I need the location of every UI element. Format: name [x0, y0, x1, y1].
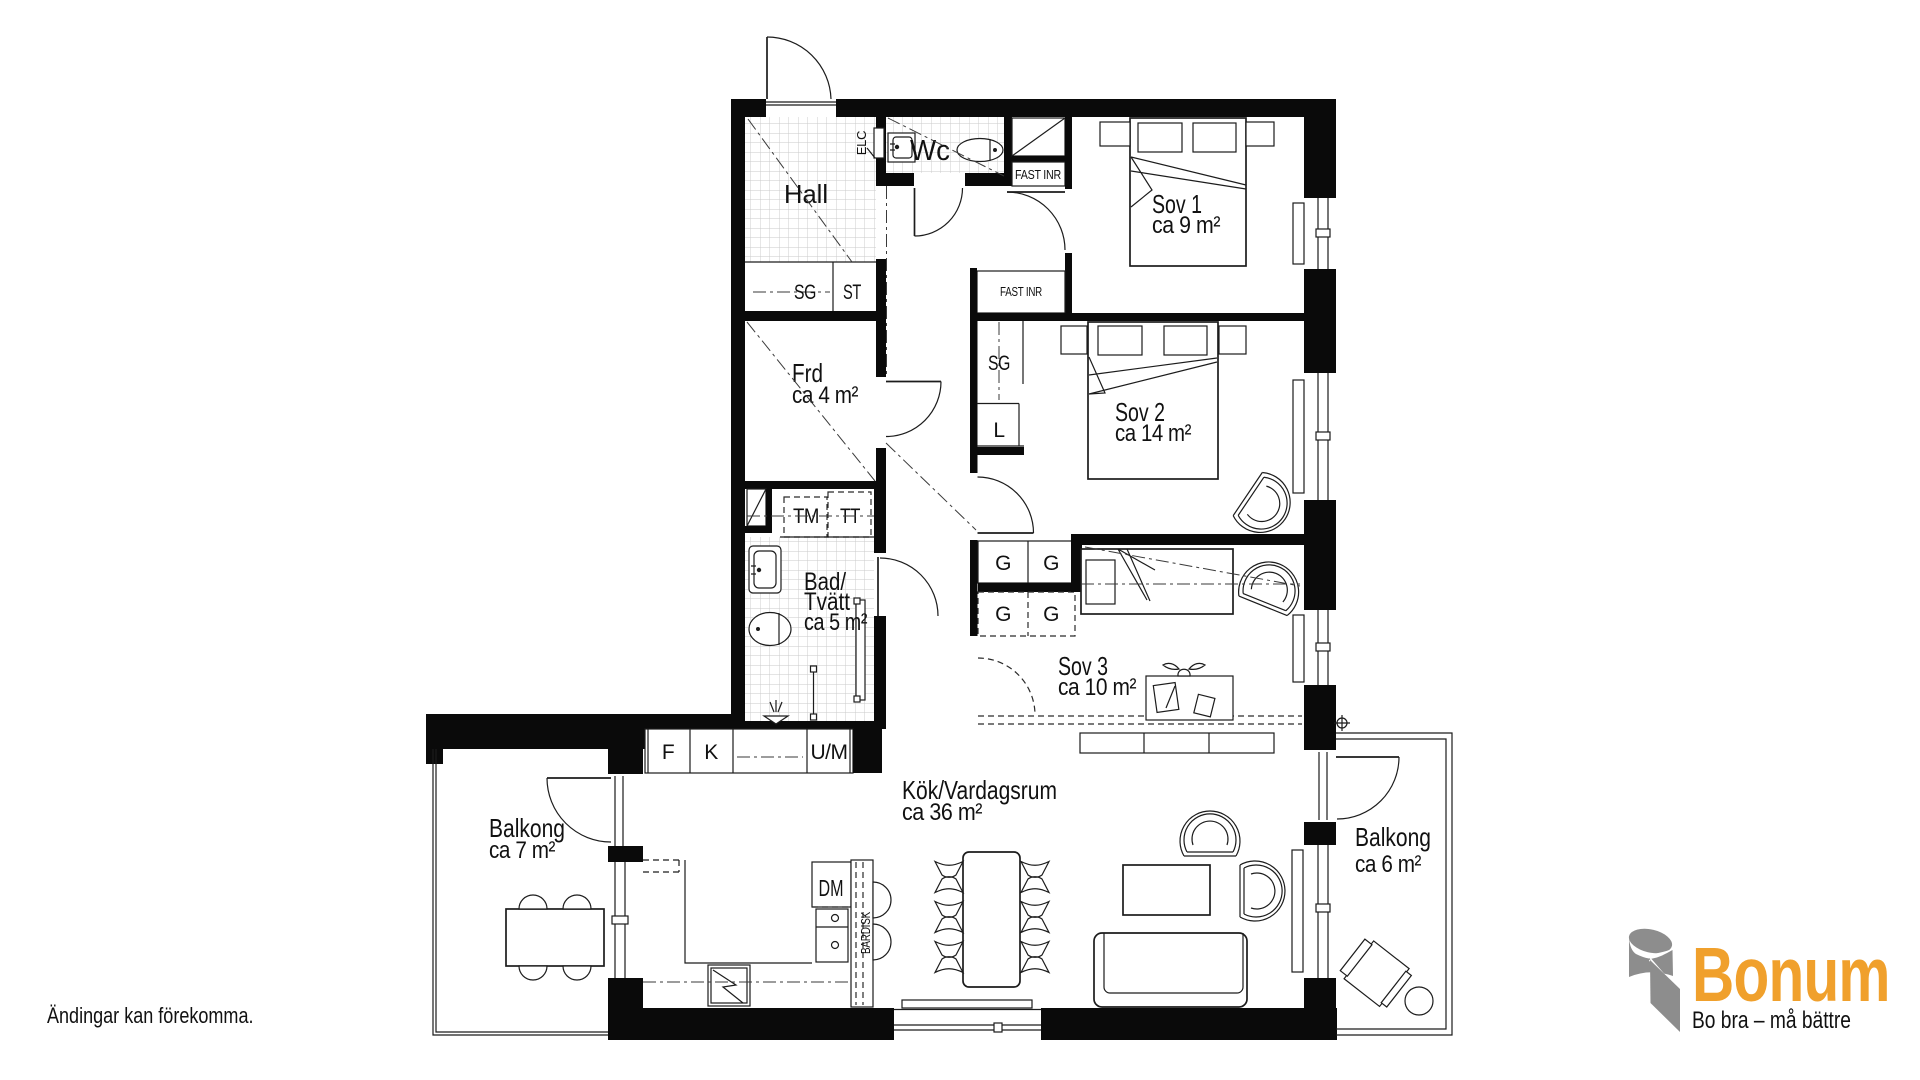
- svg-text:ST: ST: [843, 281, 861, 304]
- svg-text:ca 10 m²: ca 10 m²: [1058, 674, 1136, 701]
- svg-text:SG: SG: [794, 281, 816, 304]
- svg-text:ca 6 m²: ca 6 m²: [1355, 851, 1421, 878]
- svg-text:Bo bra – må bättre: Bo bra – må bättre: [1692, 1006, 1851, 1034]
- svg-text:F: F: [662, 741, 674, 764]
- svg-text:G: G: [1043, 603, 1059, 626]
- svg-text:Wc: Wc: [910, 135, 950, 167]
- svg-text:L: L: [993, 419, 1004, 442]
- svg-text:DM: DM: [819, 875, 844, 901]
- svg-text:FAST INR: FAST INR: [1000, 284, 1042, 299]
- svg-text:SG: SG: [988, 352, 1010, 375]
- svg-text:G: G: [995, 552, 1011, 575]
- svg-text:U/M: U/M: [811, 741, 848, 764]
- svg-text:ca 9 m²: ca 9 m²: [1152, 212, 1220, 239]
- svg-text:Ändingar kan förekomma.: Ändingar kan förekomma.: [47, 1004, 253, 1028]
- svg-text:ca 5 m²: ca 5 m²: [804, 609, 867, 636]
- svg-text:ca 14 m²: ca 14 m²: [1115, 420, 1191, 447]
- svg-text:K: K: [704, 741, 718, 764]
- svg-text:BARDISK: BARDISK: [858, 912, 873, 954]
- svg-text:G: G: [1043, 552, 1059, 575]
- svg-text:ca 7 m²: ca 7 m²: [489, 837, 555, 864]
- svg-text:ca 4 m²: ca 4 m²: [792, 382, 858, 409]
- svg-text:G: G: [995, 603, 1011, 626]
- svg-text:FAST INR: FAST INR: [1015, 167, 1061, 182]
- svg-text:ca 36 m²: ca 36 m²: [902, 799, 982, 826]
- svg-text:Balkong: Balkong: [1355, 822, 1431, 852]
- svg-text:Hall: Hall: [784, 179, 828, 209]
- svg-text:ELC: ELC: [854, 131, 869, 155]
